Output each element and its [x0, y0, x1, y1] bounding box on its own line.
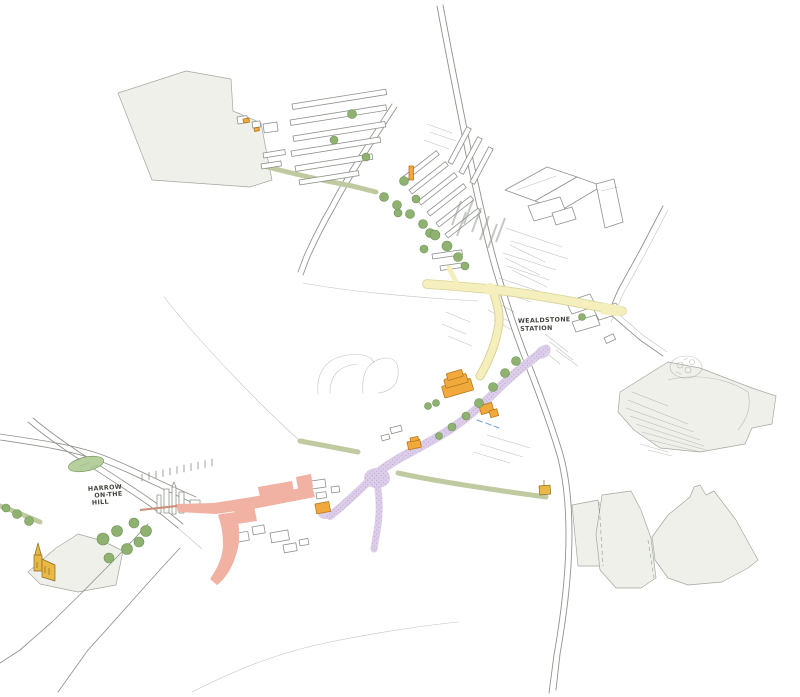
- field-top-left: [118, 71, 272, 187]
- gold-building-icon: [539, 480, 551, 495]
- labels-layer: WEALDSTONE STATION HARROW ON-THE HILL: [88, 316, 574, 507]
- railway-lines: [437, 5, 668, 693]
- hand-drawn-area-sketch-map: WEALDSTONE STATION HARROW ON-THE HILL: [0, 0, 800, 697]
- field-bottom-right-3: [652, 485, 758, 585]
- harrow-on-the-hill-label: HARROW ON-THE HILL: [88, 483, 126, 507]
- sidings-hatching: [442, 245, 578, 463]
- wealdstone-station-label: WEALDSTONE STATION: [518, 316, 574, 333]
- railway-main-east-line: [443, 5, 572, 690]
- sketch-map-page: WEALDSTONE STATION HARROW ON-THE HILL: [0, 0, 800, 697]
- landmark-building-icon: [315, 502, 331, 514]
- field-bottom-right-2: [596, 491, 656, 588]
- stream-marks: [477, 420, 499, 428]
- sports-field-right: [618, 362, 776, 452]
- housing-estate: [261, 89, 505, 270]
- avenue-tick-marks: [142, 459, 212, 481]
- route-purple-station-link: [318, 343, 553, 549]
- park-contours: [318, 354, 398, 394]
- tower-building-icon: [409, 166, 414, 180]
- north-yard-marks: [424, 124, 456, 149]
- civic-centre-icon: [438, 368, 473, 398]
- fields-layer: [28, 71, 776, 592]
- station-area-buildings: [442, 245, 621, 463]
